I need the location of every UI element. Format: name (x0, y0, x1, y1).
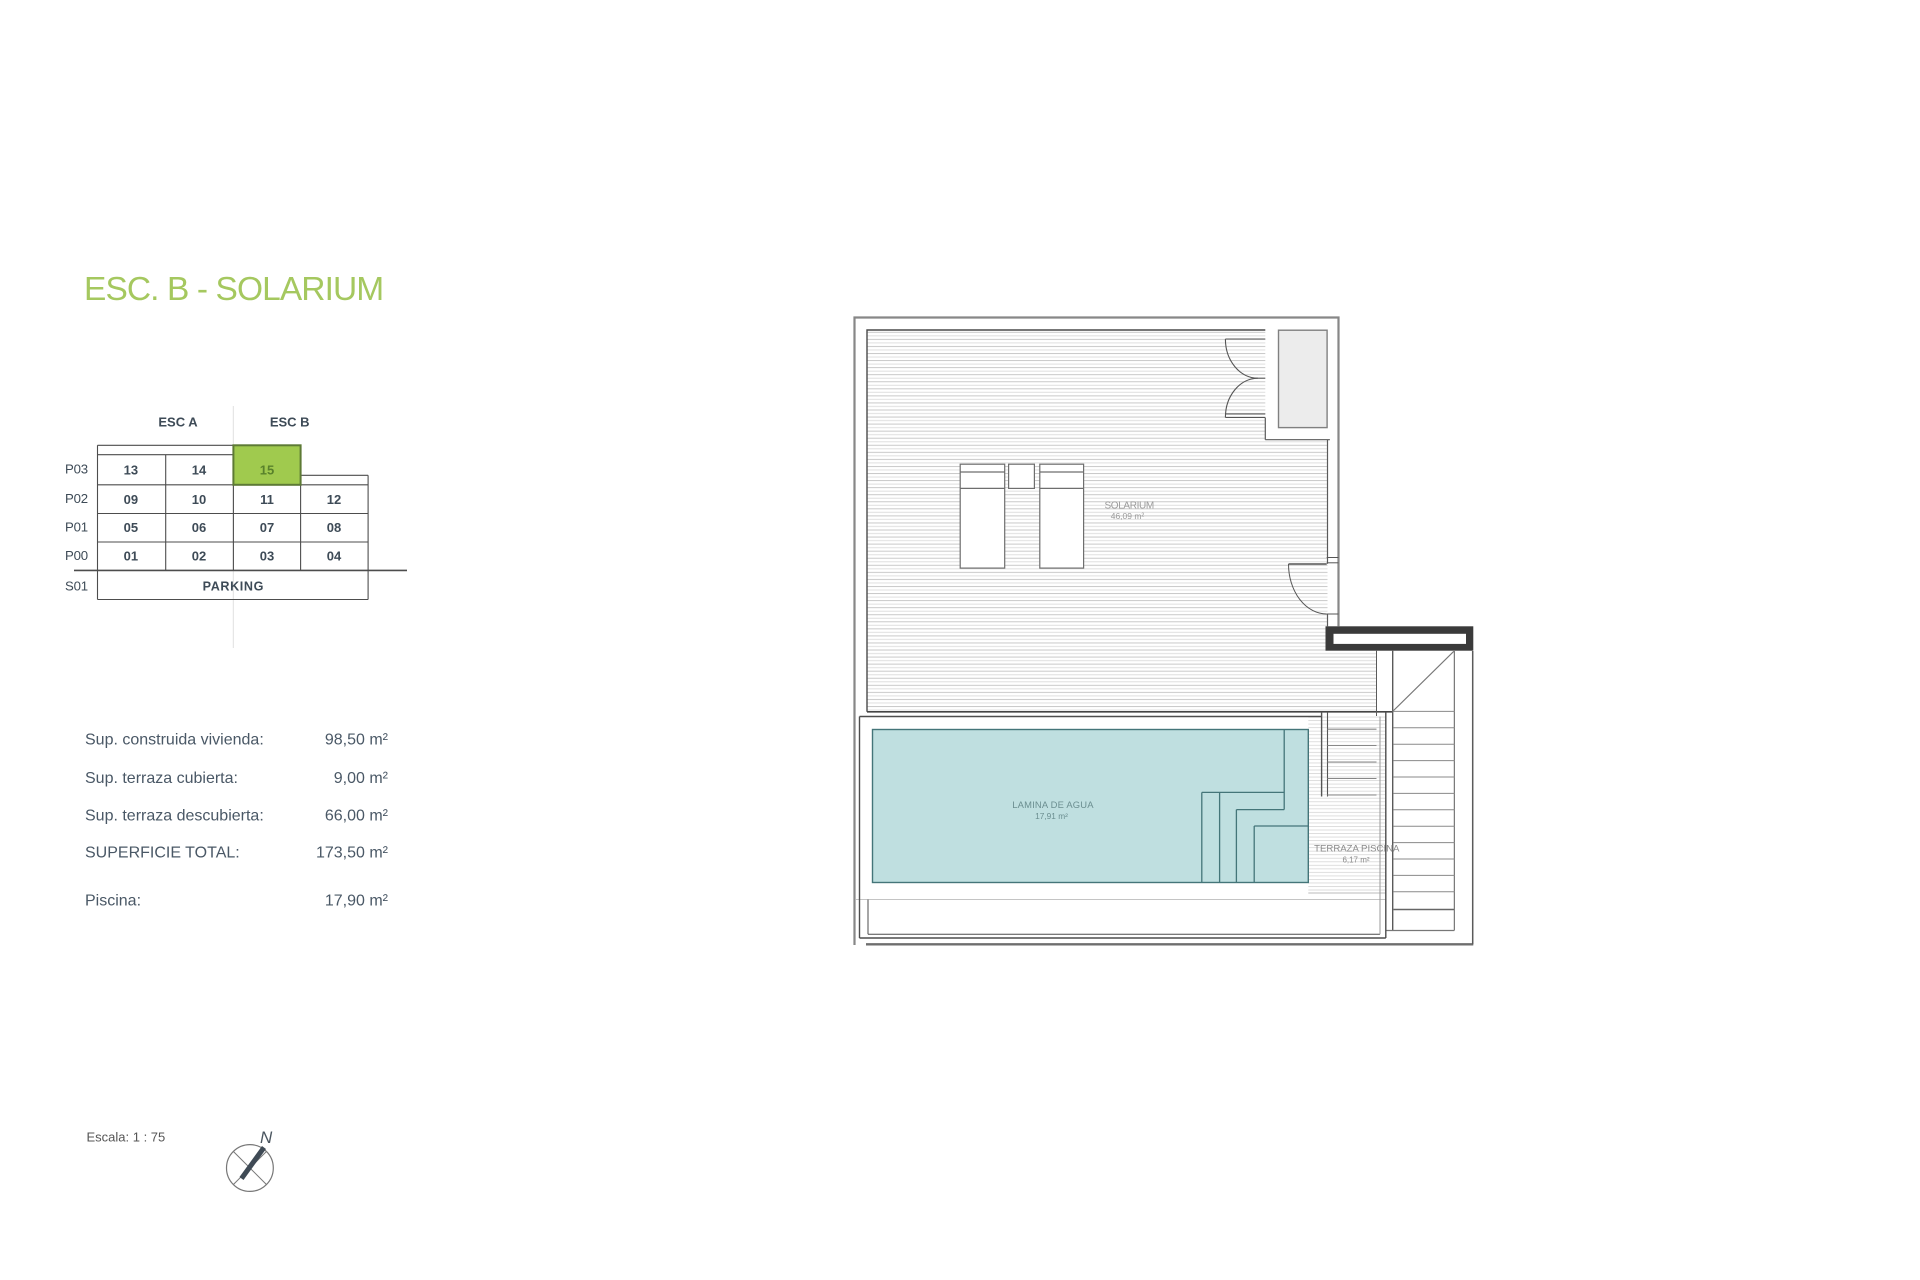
svg-text:08: 08 (327, 520, 341, 535)
svg-text:17,90 m²: 17,90 m² (325, 893, 389, 910)
svg-text:04: 04 (327, 549, 342, 564)
svg-text:03: 03 (260, 549, 274, 564)
svg-text:P01: P01 (65, 520, 88, 535)
svg-text:P02: P02 (65, 491, 88, 506)
svg-text:ESC B: ESC B (270, 415, 310, 430)
svg-text:Sup. construida vivienda:: Sup. construida vivienda: (85, 732, 264, 749)
svg-text:Escala: 1 : 75: Escala: 1 : 75 (87, 1130, 166, 1145)
svg-text:Sup. terraza cubierta:: Sup. terraza cubierta: (85, 770, 238, 787)
svg-text:09: 09 (124, 492, 138, 507)
svg-text:06: 06 (192, 520, 206, 535)
svg-text:01: 01 (124, 549, 138, 564)
svg-text:LAMINA DE AGUA: LAMINA DE AGUA (1012, 799, 1094, 810)
svg-text:PARKING: PARKING (203, 580, 264, 594)
svg-text:10: 10 (192, 492, 206, 507)
svg-text:9,00 m²: 9,00 m² (334, 770, 389, 787)
svg-text:TERRAZA PISCINA: TERRAZA PISCINA (1314, 844, 1400, 855)
svg-text:05: 05 (124, 520, 138, 535)
svg-text:SUPERFICIE TOTAL:: SUPERFICIE TOTAL: (85, 845, 240, 862)
svg-text:66,00 m²: 66,00 m² (325, 808, 389, 825)
svg-text:13: 13 (124, 462, 138, 477)
svg-text:Piscina:: Piscina: (85, 893, 141, 910)
svg-text:SOLARIUM: SOLARIUM (1104, 500, 1153, 511)
svg-text:15: 15 (260, 462, 274, 477)
svg-text:N: N (260, 1128, 273, 1147)
svg-text:173,50 m²: 173,50 m² (316, 845, 389, 862)
svg-text:Sup. terraza descubierta:: Sup. terraza descubierta: (85, 808, 264, 825)
svg-text:P03: P03 (65, 462, 88, 477)
svg-text:11: 11 (260, 492, 274, 507)
svg-text:ESC. B - SOLARIUM: ESC. B - SOLARIUM (84, 271, 383, 308)
svg-text:14: 14 (192, 462, 207, 477)
svg-text:98,50 m²: 98,50 m² (325, 732, 389, 749)
svg-text:P00: P00 (65, 548, 88, 563)
svg-text:46,09 m²: 46,09 m² (1111, 511, 1145, 521)
svg-text:ESC A: ESC A (158, 415, 198, 430)
svg-text:12: 12 (327, 492, 341, 507)
svg-text:6,17 m²: 6,17 m² (1342, 856, 1369, 865)
svg-text:02: 02 (192, 549, 206, 564)
svg-text:17,91 m²: 17,91 m² (1035, 811, 1068, 821)
svg-text:S01: S01 (65, 579, 88, 594)
svg-text:07: 07 (260, 520, 274, 535)
